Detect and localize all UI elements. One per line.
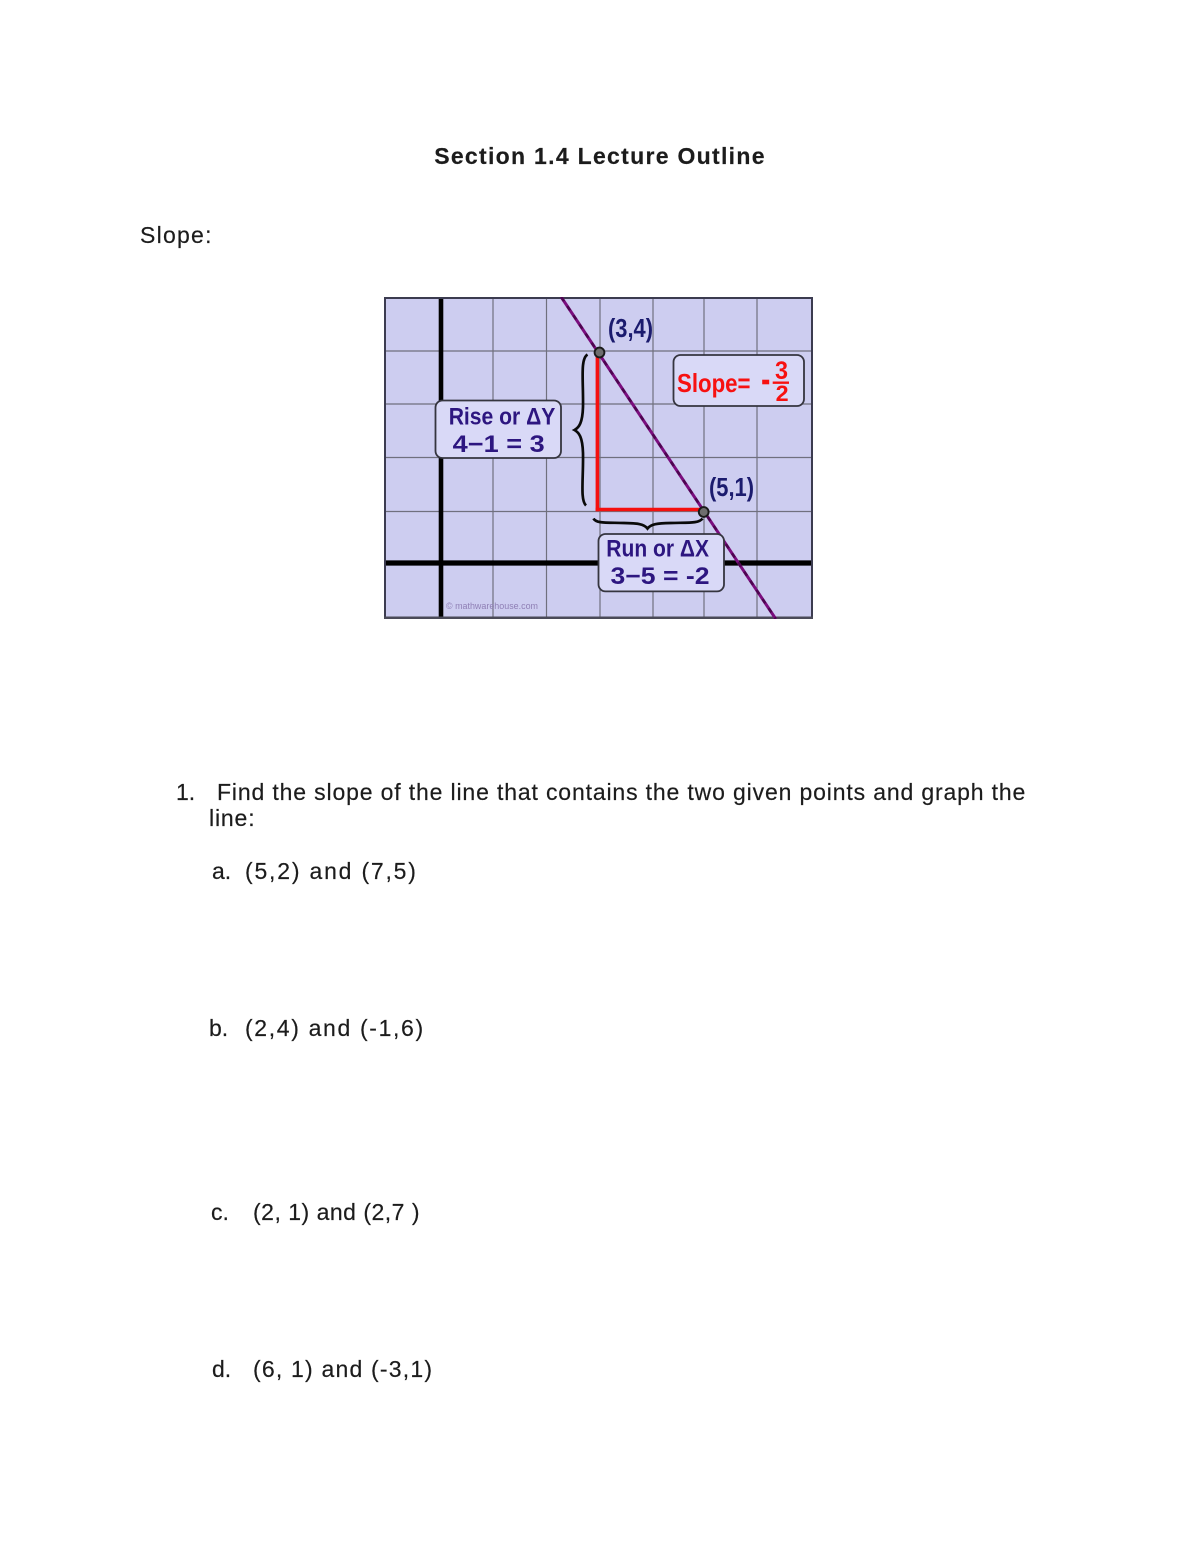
svg-text:(3,4): (3,4): [608, 313, 653, 343]
svg-text:© mathwarehouse.com: © mathwarehouse.com: [446, 601, 538, 611]
svg-text:Run or ΔX: Run or ΔX: [606, 535, 709, 562]
svg-text:4−1 = 3: 4−1 = 3: [453, 431, 545, 458]
svg-text:2: 2: [776, 381, 789, 406]
svg-text:Slope=: Slope=: [677, 368, 751, 398]
svg-text:Rise or ΔY: Rise or ΔY: [449, 404, 556, 431]
svg-text:(5,1): (5,1): [709, 472, 754, 502]
svg-text:3−5 = -2: 3−5 = -2: [611, 563, 710, 590]
